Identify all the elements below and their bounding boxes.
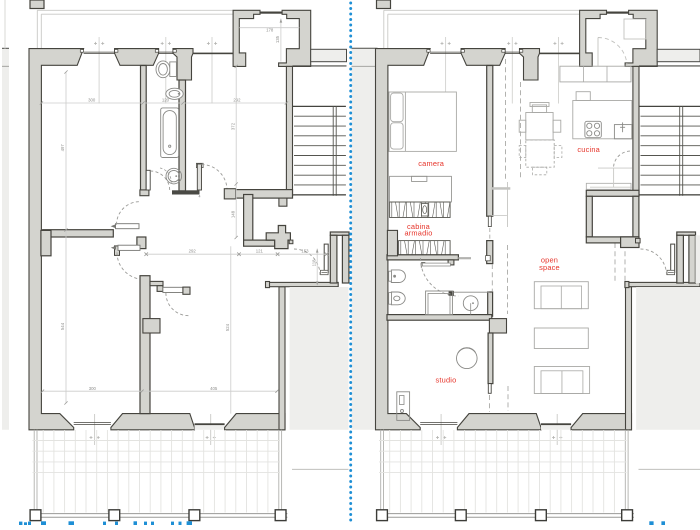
svg-text:148: 148 [230, 210, 235, 218]
svg-text:121: 121 [256, 248, 264, 253]
svg-text:497: 497 [60, 144, 65, 152]
svg-text:405: 405 [210, 386, 218, 391]
svg-text:118: 118 [311, 259, 316, 266]
svg-text:studio: studio [436, 375, 457, 384]
svg-text:camera: camera [418, 159, 445, 168]
svg-text:120: 120 [162, 98, 170, 103]
svg-text:300: 300 [88, 98, 96, 103]
svg-text:135: 135 [275, 35, 280, 43]
svg-text:armadio: armadio [404, 228, 432, 237]
svg-text:544: 544 [60, 322, 65, 330]
svg-text:153: 153 [301, 248, 309, 253]
svg-text:cucina: cucina [577, 145, 600, 154]
svg-text:292: 292 [189, 248, 197, 253]
svg-text:178: 178 [266, 27, 274, 32]
svg-text:372: 372 [230, 122, 235, 130]
svg-text:300: 300 [89, 386, 97, 391]
svg-text:524: 524 [225, 323, 230, 331]
svg-text:space: space [539, 263, 560, 272]
svg-text:4: 4 [199, 195, 201, 199]
svg-text:292: 292 [233, 98, 241, 103]
